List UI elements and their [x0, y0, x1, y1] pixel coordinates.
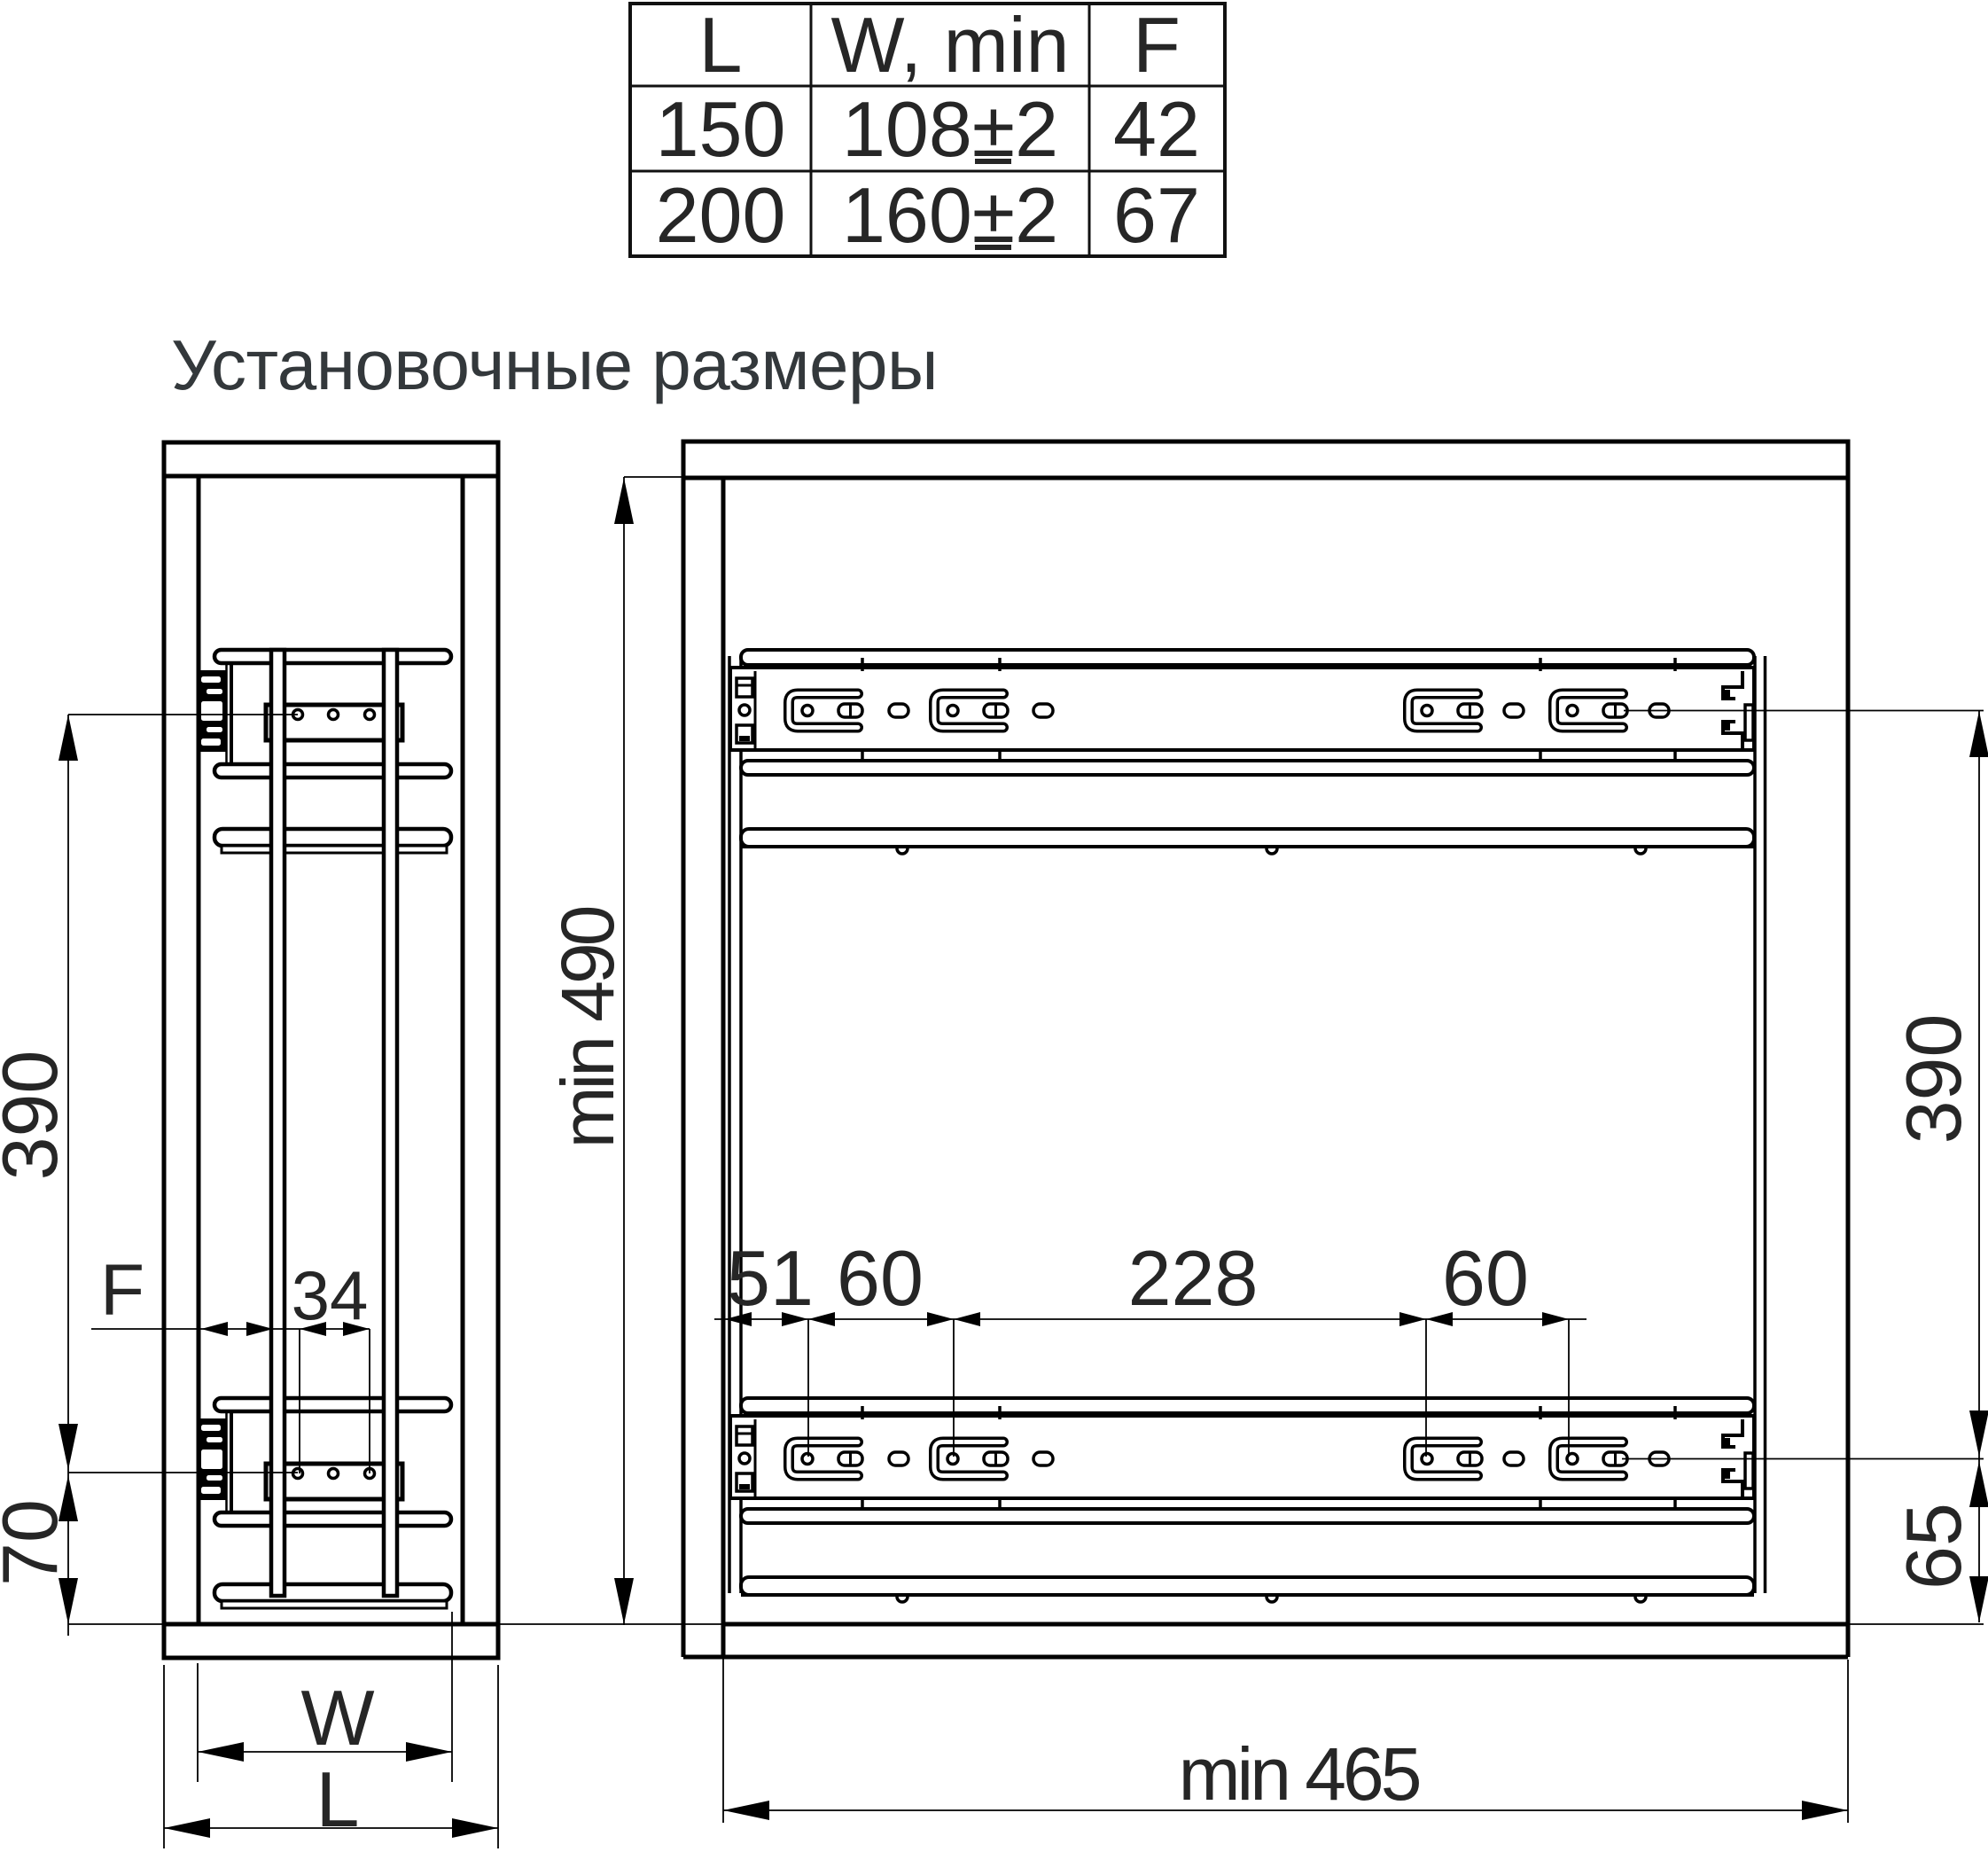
- svg-text:108±2: 108±2: [842, 85, 1058, 173]
- svg-text:67: 67: [1113, 171, 1200, 259]
- svg-text:min 490: min 490: [546, 907, 629, 1148]
- svg-text:160±2: 160±2: [842, 171, 1058, 259]
- svg-text:F: F: [1133, 1, 1181, 89]
- svg-text:51: 51: [727, 1234, 814, 1322]
- svg-text:L: L: [699, 1, 743, 89]
- svg-text:Установочные размеры: Установочные размеры: [171, 325, 938, 404]
- svg-text:42: 42: [1113, 85, 1200, 173]
- svg-text:70: 70: [0, 1499, 74, 1586]
- svg-text:390: 390: [1890, 1014, 1977, 1145]
- svg-text:W, min: W, min: [831, 1, 1070, 89]
- svg-text:228: 228: [1128, 1234, 1259, 1322]
- svg-text:34: 34: [292, 1256, 369, 1334]
- svg-text:W: W: [300, 1674, 374, 1762]
- svg-text:60: 60: [837, 1234, 924, 1322]
- svg-text:min 465: min 465: [1179, 1732, 1420, 1816]
- svg-text:60: 60: [1442, 1234, 1529, 1322]
- svg-text:390: 390: [0, 1051, 74, 1181]
- svg-text:L: L: [316, 1755, 360, 1843]
- svg-text:65: 65: [1890, 1503, 1977, 1590]
- svg-text:F: F: [100, 1250, 144, 1331]
- svg-text:150: 150: [656, 85, 786, 173]
- svg-text:200: 200: [656, 171, 786, 259]
